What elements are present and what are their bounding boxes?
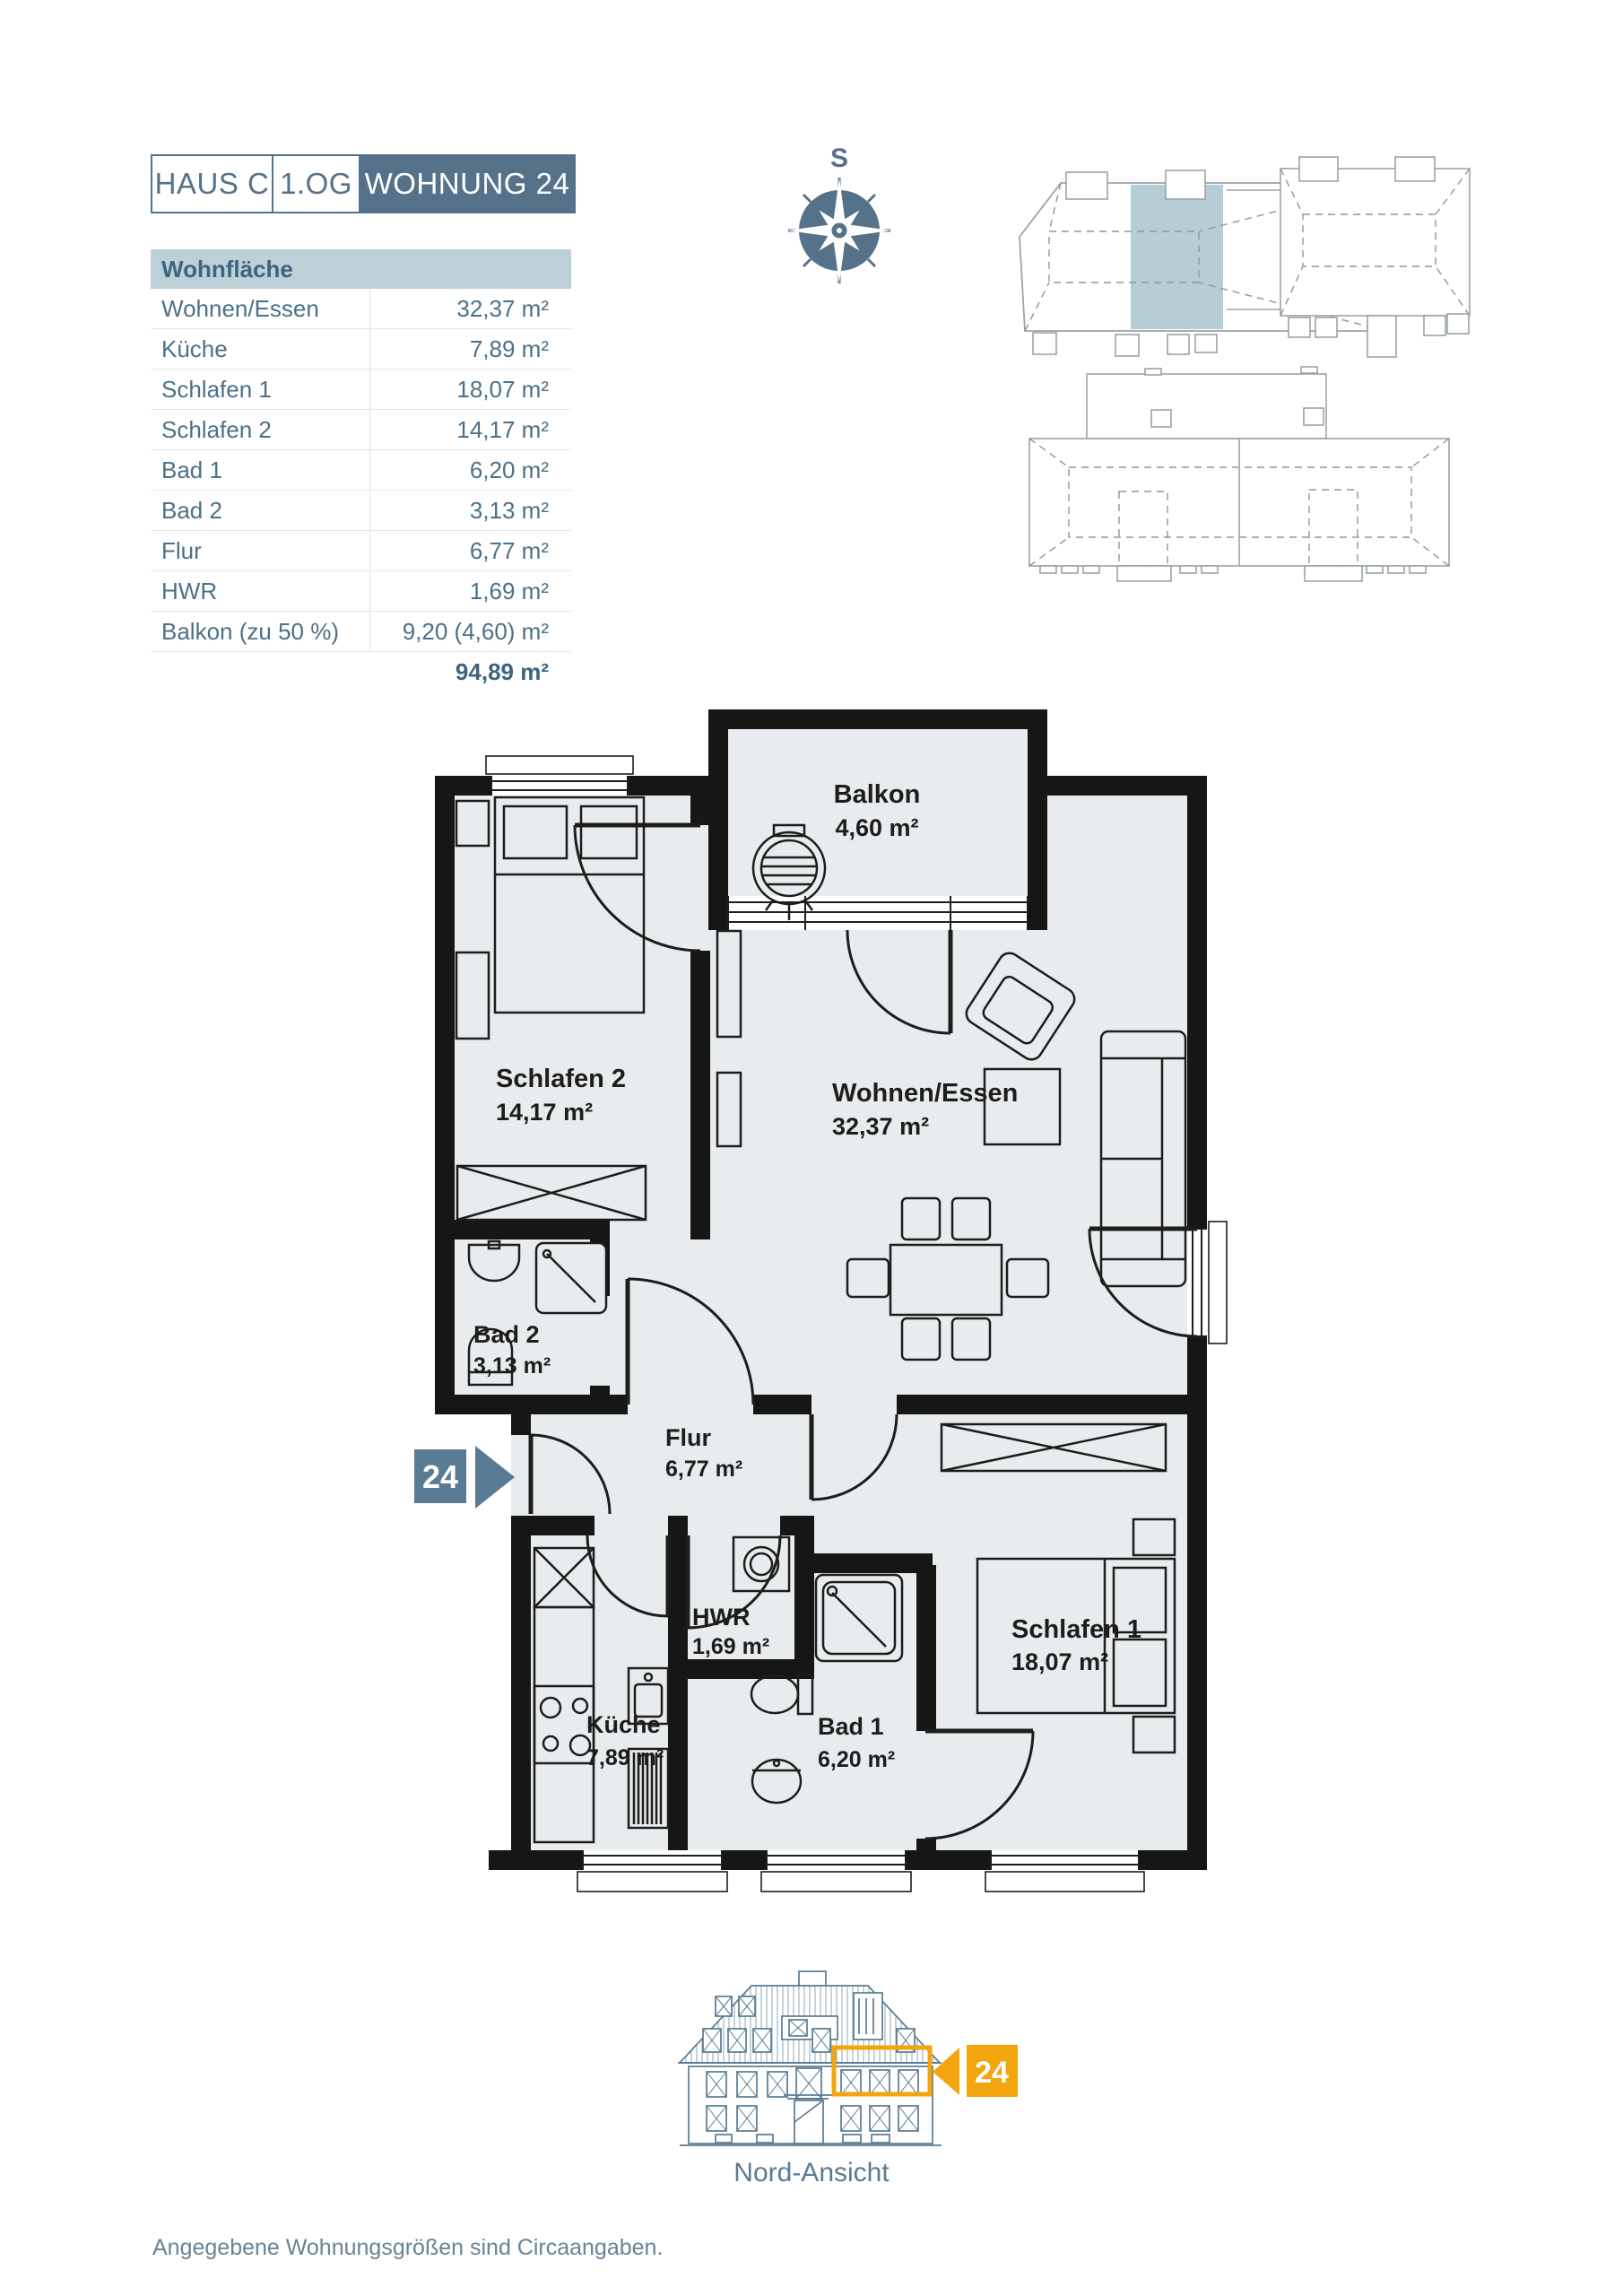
- row-label: Balkon (zu 50 %): [151, 612, 370, 651]
- row-label: Flur: [151, 531, 370, 570]
- row-label: HWR: [151, 571, 370, 611]
- elevation-drawing: 24 Nord-Ansicht: [664, 1964, 1049, 2193]
- footer-note: Angegebene Wohnungsgrößen sind Circaanga…: [152, 2235, 663, 2261]
- svg-text:18,07 m²: 18,07 m²: [1011, 1648, 1108, 1675]
- svg-text:7,89 m²: 7,89 m²: [586, 1745, 664, 1770]
- elevation-building: [678, 1971, 942, 2145]
- row-value: 1,69 m²: [370, 578, 571, 605]
- table-row: Flur6,77 m²: [151, 531, 571, 571]
- row-value: 9,20 (4,60) m²: [370, 618, 571, 646]
- table-row: Schlafen 118,07 m²: [151, 370, 571, 410]
- table-row: Bad 16,20 m²: [151, 450, 571, 491]
- room-label-kueche: Küche: [586, 1711, 661, 1738]
- area-table-title: Wohnfläche: [151, 249, 571, 289]
- entrance-door: [794, 2100, 823, 2144]
- svg-text:4,60 m²: 4,60 m²: [835, 814, 918, 841]
- site-building-lower: [1029, 367, 1449, 581]
- floor-plan: Balkon 4,60 m² Schlafen 2 14,17 m² Wohne…: [404, 682, 1282, 1919]
- room-label-schlafen2: Schlafen 2: [496, 1065, 626, 1093]
- row-value: 6,77 m²: [370, 537, 571, 565]
- room-label-wohnen: Wohnen/Essen: [832, 1079, 1018, 1108]
- elevation-caption: Nord-Ansicht: [733, 2158, 890, 2187]
- row-value: 3,13 m²: [370, 497, 571, 525]
- row-label: Küche: [151, 329, 370, 369]
- row-label: Schlafen 2: [151, 410, 370, 449]
- row-value: 32,37 m²: [370, 295, 571, 323]
- table-row: Küche7,89 m²: [151, 329, 571, 370]
- compass-south-label: S: [830, 143, 848, 173]
- balcony-floor: [728, 729, 1028, 896]
- site-plan: [973, 148, 1493, 596]
- room-label-bad1: Bad 1: [818, 1713, 884, 1740]
- table-row: Balkon (zu 50 %)9,20 (4,60) m²: [151, 612, 571, 652]
- site-building-right: [1280, 157, 1470, 357]
- entry-badge-number: 24: [422, 1458, 458, 1495]
- area-table-rows: Wohnen/Essen32,37 m²Küche7,89 m²Schlafen…: [151, 289, 571, 652]
- row-label: Bad 1: [151, 450, 370, 490]
- row-value: 7,89 m²: [370, 335, 571, 363]
- table-row: Bad 23,13 m²: [151, 491, 571, 531]
- room-label-balkon: Balkon: [834, 780, 921, 809]
- room-label-hwr: HWR: [692, 1604, 750, 1631]
- row-label: Bad 2: [151, 491, 370, 530]
- row-label: Schlafen 1: [151, 370, 370, 409]
- svg-text:1,69 m²: 1,69 m²: [692, 1634, 769, 1659]
- room-label-schlafen1: Schlafen 1: [1011, 1615, 1141, 1644]
- unit-label: WOHNUNG 24: [360, 154, 576, 213]
- row-label: Wohnen/Essen: [151, 289, 370, 328]
- site-unit-highlight: [1131, 185, 1223, 329]
- entry-arrow-icon: [475, 1446, 515, 1509]
- area-table: Wohnfläche Wohnen/Essen32,37 m²Küche7,89…: [151, 249, 571, 692]
- room-label-flur: Flur: [665, 1424, 711, 1451]
- row-value: 18,07 m²: [370, 376, 571, 404]
- unit-entry-badge: 24: [414, 1446, 515, 1509]
- title-bar: HAUS C 1.OG WOHNUNG 24: [151, 154, 576, 213]
- floor-label: 1.OG: [273, 154, 360, 213]
- apartment-floor: [455, 796, 1187, 1850]
- house-label: HAUS C: [151, 154, 273, 213]
- compass-icon: S: [785, 140, 897, 294]
- svg-text:6,20 m²: 6,20 m²: [818, 1747, 895, 1772]
- row-value: 14,17 m²: [370, 416, 571, 444]
- svg-text:6,77 m²: 6,77 m²: [665, 1457, 742, 1482]
- marker-arrow-icon: [933, 2048, 959, 2095]
- room-label-bad2: Bad 2: [473, 1321, 540, 1348]
- svg-text:14,17 m²: 14,17 m²: [496, 1099, 593, 1126]
- table-row: HWR1,69 m²: [151, 571, 571, 612]
- marker-badge-number: 24: [975, 2056, 1009, 2090]
- svg-text:32,37 m²: 32,37 m²: [832, 1113, 929, 1140]
- svg-text:3,13 m²: 3,13 m²: [473, 1353, 551, 1378]
- table-row: Wohnen/Essen32,37 m²: [151, 289, 571, 329]
- table-row: Schlafen 214,17 m²: [151, 410, 571, 450]
- row-value: 6,20 m²: [370, 457, 571, 484]
